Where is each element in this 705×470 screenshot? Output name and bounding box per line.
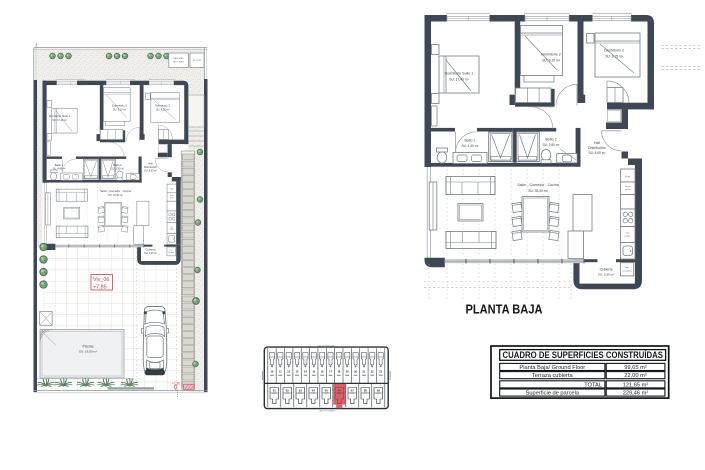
svg-text:SU: 3,80 m²: SU: 3,80 m² [111,168,124,171]
svg-text:SU: 9,15 m²: SU: 9,15 m² [605,55,623,59]
svg-text:SU: 8,60 m²: SU: 8,60 m² [144,170,157,173]
svg-text:06: 06 [338,388,341,392]
svg-text:SU: 17,40 m²: SU: 17,40 m² [52,119,67,122]
svg-text:Planta Baja/ Ground Floor: Planta Baja/ Ground Floor [519,365,585,371]
svg-text:SU: 2,00 m²: SU: 2,00 m² [144,252,157,255]
svg-text:Dormitorio Suite 1: Dormitorio Suite 1 [445,72,474,76]
svg-text:Dormitorio 3: Dormitorio 3 [155,104,170,108]
svg-text:TOTAL: TOTAL [584,382,602,388]
svg-text:Dormitorio 2: Dormitorio 2 [112,104,127,108]
svg-text:05: 05 [325,388,328,392]
svg-text:SU: 33,30 m²: SU: 33,30 m² [108,194,123,197]
svg-text:horno: horno [625,185,631,188]
svg-text:SU: 4,40 m²: SU: 4,40 m² [53,168,66,171]
svg-text:229,46 m²: 229,46 m² [623,391,649,397]
svg-text:SU: 33,30 m²: SU: 33,30 m² [528,189,548,193]
svg-text:Baño 2: Baño 2 [113,163,122,167]
svg-text:secadora: secadora [623,269,633,272]
svg-text:Hall: Hall [594,141,600,145]
svg-text:SU: 3,80 m²: SU: 3,80 m² [542,143,559,147]
svg-text:Dormitorio Suite 1: Dormitorio Suite 1 [49,114,71,118]
svg-text:Terraza cubierta: Terraza cubierta [532,373,574,379]
svg-text:03: 03 [299,388,302,392]
svg-text:SU: 4,40 m²: SU: 4,40 m² [461,144,478,148]
svg-text:Distribuidor: Distribuidor [144,165,157,169]
svg-text:SU: 17,40 m²: SU: 17,40 m² [449,78,469,82]
svg-text:CALLE PEATONAL: CALLE PEATONAL [317,344,336,347]
svg-text:Salón - Comedor - Cocina: Salón - Comedor - Cocina [517,183,559,187]
svg-text:Baño 1: Baño 1 [55,163,64,167]
svg-text:Piscina: Piscina [83,345,94,349]
svg-text:Superficie de parcela: Superficie de parcela [526,391,580,397]
svg-text:SU: 9,15 m²: SU: 9,15 m² [156,108,170,111]
svg-text:Dormitorio 3: Dormitorio 3 [604,49,624,53]
svg-text:+7,85: +7,85 [93,284,107,290]
svg-text:+7,85: +7,85 [172,382,180,386]
svg-text:Viv_06: Viv_06 [93,277,109,283]
svg-text:Baño 2: Baño 2 [545,138,556,142]
svg-text:micro: micro [625,188,631,191]
svg-text:Frigo: Frigo [625,175,631,178]
svg-text:99,65 m²: 99,65 m² [624,365,647,371]
svg-text:22,00 m²: 22,00 m² [624,373,647,379]
svg-text:Dormitorio 2: Dormitorio 2 [541,53,561,57]
svg-text:CALLE RODADA: CALLE RODADA [318,410,335,413]
svg-text:SU: 2,00 m²: SU: 2,00 m² [598,273,615,277]
svg-text:CUADRO DE SUPERFICIES CONSTRUÍ: CUADRO DE SUPERFICIES CONSTRUÍDAS [503,350,664,360]
svg-text:02: 02 [286,388,289,392]
svg-text:BASURAS: BASURAS [173,57,184,60]
svg-text:Salón - Comedor - Cocina: Salón - Comedor - Cocina [100,189,132,193]
svg-text:01: 01 [273,388,276,392]
svg-text:SU: 8,60 m²: SU: 8,60 m² [588,151,605,155]
svg-text:Distribuidor: Distribuidor [588,146,607,150]
svg-text:PLANTA BAJA: PLANTA BAJA [466,302,543,317]
svg-text:SU: 9,10 m²: SU: 9,10 m² [542,59,560,63]
svg-text:09: 09 [377,388,380,392]
svg-text:SU: 9,10 m²: SU: 9,10 m² [113,108,127,111]
svg-text:Hall: Hall [148,162,153,166]
svg-text:Cubierta: Cubierta [146,248,156,252]
svg-text:vajillas: vajillas [624,236,631,238]
svg-text:MOTOR: MOTOR [193,60,202,62]
svg-text:04: 04 [312,388,315,392]
svg-text:07: 07 [351,388,354,392]
svg-text:BUZONES: BUZONES [173,62,184,64]
svg-text:08: 08 [364,388,367,392]
svg-text:Baño 1: Baño 1 [464,139,475,143]
svg-text:121,65 m²: 121,65 m² [623,382,649,388]
svg-text:Cubierta: Cubierta [600,268,613,272]
svg-text:SU: 16,00 m²: SU: 16,00 m² [79,350,97,354]
